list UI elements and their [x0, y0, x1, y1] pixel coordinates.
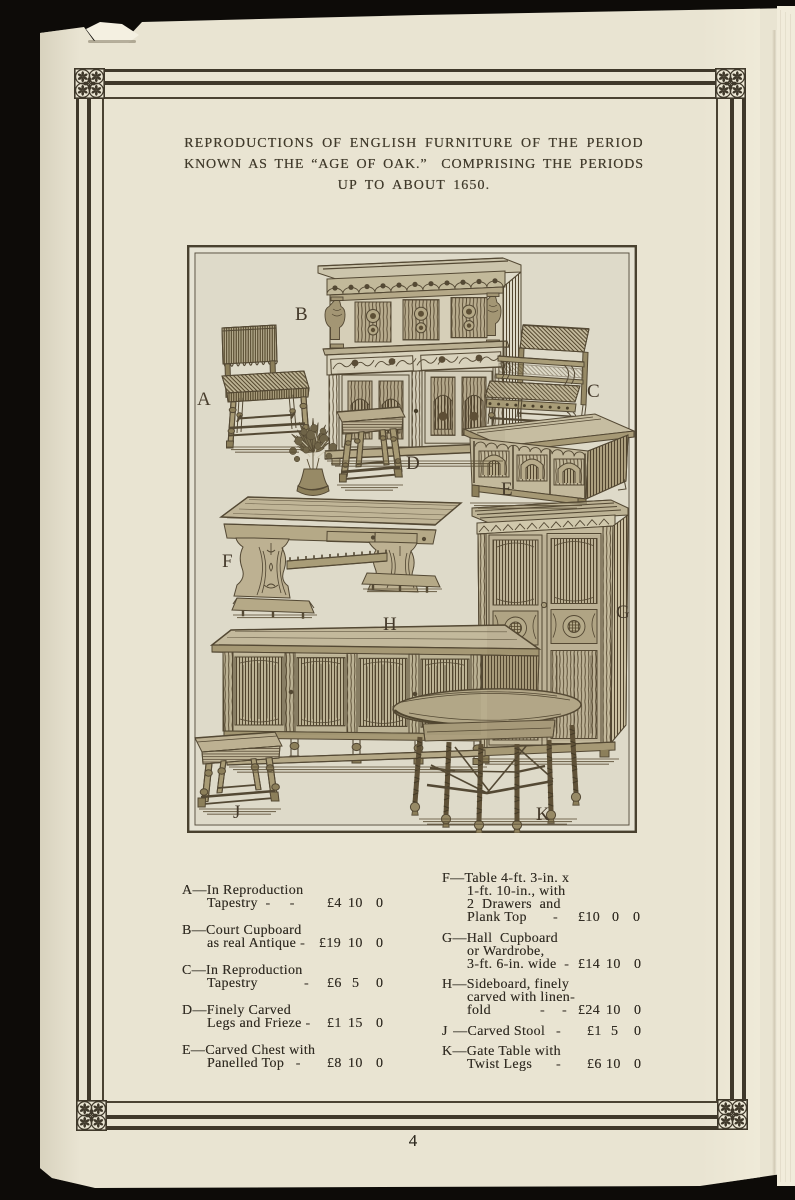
- svg-text:E: E: [501, 479, 513, 500]
- svg-text:C: C: [587, 381, 600, 402]
- svg-text:D: D: [406, 453, 420, 474]
- svg-text:H: H: [383, 614, 397, 635]
- svg-text:B: B: [295, 304, 308, 325]
- svg-text:K: K: [536, 804, 550, 825]
- svg-text:G: G: [616, 602, 630, 623]
- svg-text:J: J: [233, 802, 240, 823]
- svg-text:F: F: [222, 551, 233, 572]
